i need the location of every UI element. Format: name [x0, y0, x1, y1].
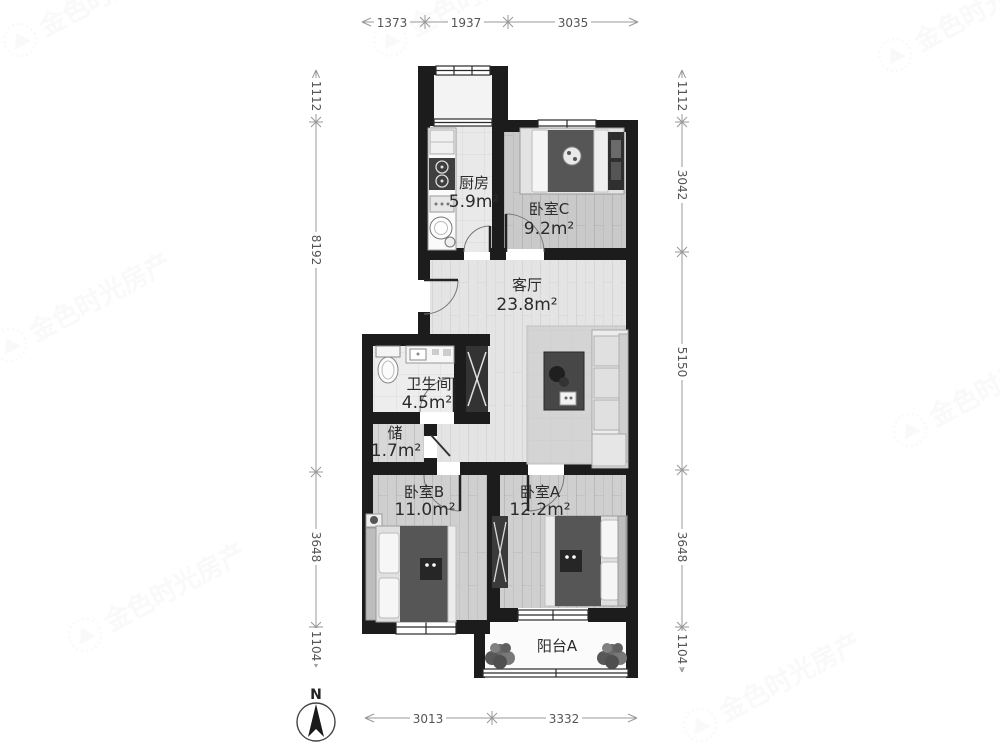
svg-text:金色时光房产: 金色时光房产: [98, 537, 251, 638]
coffee-table: [544, 352, 584, 410]
svg-text:金色时光房产: 金色时光房产: [713, 627, 866, 728]
toilet: [376, 346, 400, 383]
dim-bottom-2: 3332: [549, 712, 580, 726]
living-room-label: 客厅: [512, 276, 542, 294]
bedroom-b-label: 卧室B: [404, 483, 444, 501]
bathroom-vanity: [406, 346, 454, 363]
floor-plan-canvas: 金色时光房产 金色时光房产 金色时光房产 金色时光房产 金色时光房产 金色时光房…: [0, 0, 1000, 750]
kitchen-counter: [428, 128, 456, 250]
balcony-label: 阳台A: [537, 637, 578, 655]
watermark: 金色时光房产: [678, 626, 866, 746]
dimension-bottom: 3013 3332: [365, 710, 637, 726]
bedroom-a-balcony-window: [518, 610, 588, 620]
dimension-top: 1373 1937 3035: [362, 14, 638, 30]
dim-right-4: 3648: [675, 532, 689, 563]
dim-left-4: 1104: [309, 631, 323, 662]
dim-bottom-1: 3013: [413, 712, 444, 726]
bathroom-area: 4.5m²: [402, 393, 452, 413]
dim-left-3: 3648: [309, 532, 323, 563]
bedroom-a-wardrobe: [492, 516, 508, 588]
bedroom-b-bed: [366, 514, 456, 622]
stove: [429, 158, 455, 190]
balcony-window: [483, 669, 628, 677]
watermark: 金色时光房产: [873, 0, 1000, 77]
watermark: 金色时光房产: [0, 246, 176, 366]
compass-north-label: N: [310, 687, 322, 703]
sofa: [592, 330, 628, 468]
dimension-left: 1112 8192 3648 1104: [308, 70, 324, 667]
bedroom-a-area: 12.2m²: [509, 500, 570, 520]
compass: N: [297, 687, 335, 741]
bay-floor: [434, 75, 492, 120]
dim-right-5: 1104: [675, 634, 689, 665]
dim-left-2: 8192: [309, 235, 323, 266]
kitchen-label: 厨房: [459, 174, 489, 192]
bedroom-b-area: 11.0m²: [394, 500, 455, 520]
svg-text:金色时光房产: 金色时光房产: [23, 247, 176, 348]
dim-left-1: 1112: [309, 81, 323, 112]
watermark: 金色时光房产: [0, 0, 186, 62]
kitchen-sink: [430, 217, 452, 239]
watermark: 金色时光房产: [63, 536, 251, 656]
svg-text:金色时光房产: 金色时光房产: [908, 0, 1000, 58]
bathroom-label: 卫生间: [406, 375, 451, 393]
bedroom-c-area: 9.2m²: [524, 219, 574, 239]
compass-needle-icon: [308, 704, 324, 737]
hall-closet: [466, 346, 488, 412]
dimension-right: 1112 3042 5150 3648 1104: [674, 70, 690, 672]
dim-right-2: 3042: [675, 170, 689, 201]
watermark: 金色时光房产: [888, 331, 1000, 451]
dim-top-2: 1937: [451, 16, 482, 30]
dim-top-1: 1373: [377, 16, 408, 30]
svg-text:金色时光房产: 金色时光房产: [923, 332, 1000, 433]
living-room-area: 23.8m²: [496, 295, 557, 315]
dim-right-3: 5150: [675, 347, 689, 378]
storage-area: 1.7m²: [371, 441, 421, 461]
bedroom-c-label: 卧室C: [529, 200, 569, 218]
bedroom-c-bed: [520, 128, 624, 194]
bedroom-a-bed: [545, 516, 627, 606]
kitchen-area: 5.9m²: [449, 192, 499, 212]
bay-window: [436, 66, 490, 75]
watermark-logo-icon: [8, 29, 30, 50]
dim-top-3: 3035: [558, 16, 589, 30]
floor-plan-page: 金色时光房产 金色时光房产 金色时光房产 金色时光房产 金色时光房产 金色时光房…: [0, 0, 1000, 750]
dim-right-1: 1112: [675, 81, 689, 112]
watermark: 金色时光房产: [368, 0, 556, 62]
watermark-text: 金色时光房产: [33, 0, 186, 43]
bedroom-a-label: 卧室A: [520, 483, 561, 501]
storage-label: 储: [387, 424, 402, 442]
bay-kitchen-window: [434, 119, 492, 126]
